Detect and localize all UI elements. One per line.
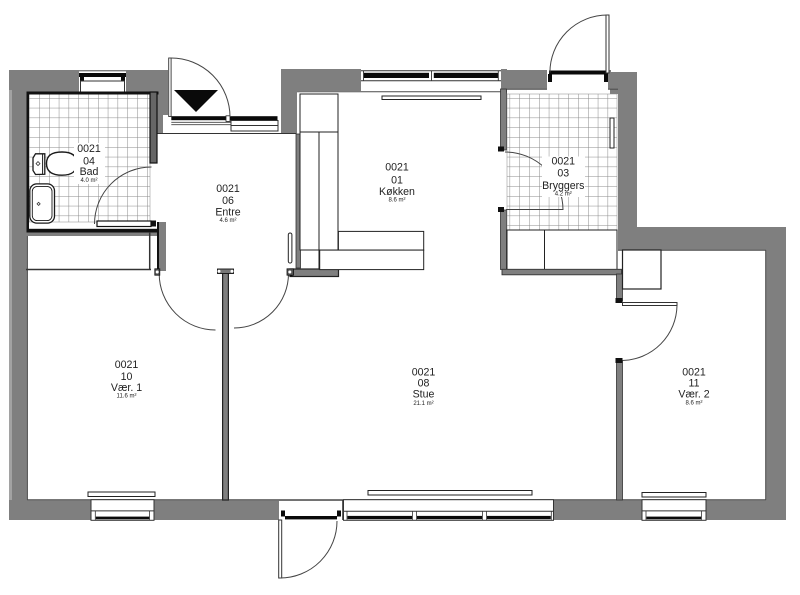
svg-text:01: 01 [391, 175, 403, 187]
svg-text:8.6 m²: 8.6 m² [388, 197, 405, 203]
svg-text:0021: 0021 [115, 359, 139, 371]
svg-text:4.6 m²: 4.6 m² [219, 218, 236, 224]
svg-text:Entre: Entre [215, 206, 240, 218]
svg-text:Vær. 2: Vær. 2 [678, 389, 709, 401]
svg-text:0021: 0021 [216, 183, 240, 195]
svg-text:0021: 0021 [552, 156, 576, 168]
svg-text:10: 10 [121, 371, 133, 383]
svg-text:03: 03 [557, 167, 569, 179]
svg-text:Vær. 1: Vær. 1 [111, 382, 142, 394]
svg-text:Bad: Bad [80, 166, 99, 178]
svg-text:Stue: Stue [413, 389, 435, 401]
svg-text:0021: 0021 [385, 162, 409, 174]
svg-text:4.0 m²: 4.0 m² [80, 178, 97, 184]
svg-text:8.6 m²: 8.6 m² [685, 401, 702, 407]
svg-text:4.2 m²: 4.2 m² [555, 191, 572, 197]
svg-text:11.6 m²: 11.6 m² [117, 394, 137, 400]
svg-text:0021: 0021 [412, 366, 436, 378]
svg-text:0021: 0021 [77, 143, 101, 155]
svg-text:21.1 m²: 21.1 m² [413, 401, 433, 407]
svg-text:Bryggers: Bryggers [542, 180, 584, 192]
svg-text:06: 06 [222, 195, 234, 207]
